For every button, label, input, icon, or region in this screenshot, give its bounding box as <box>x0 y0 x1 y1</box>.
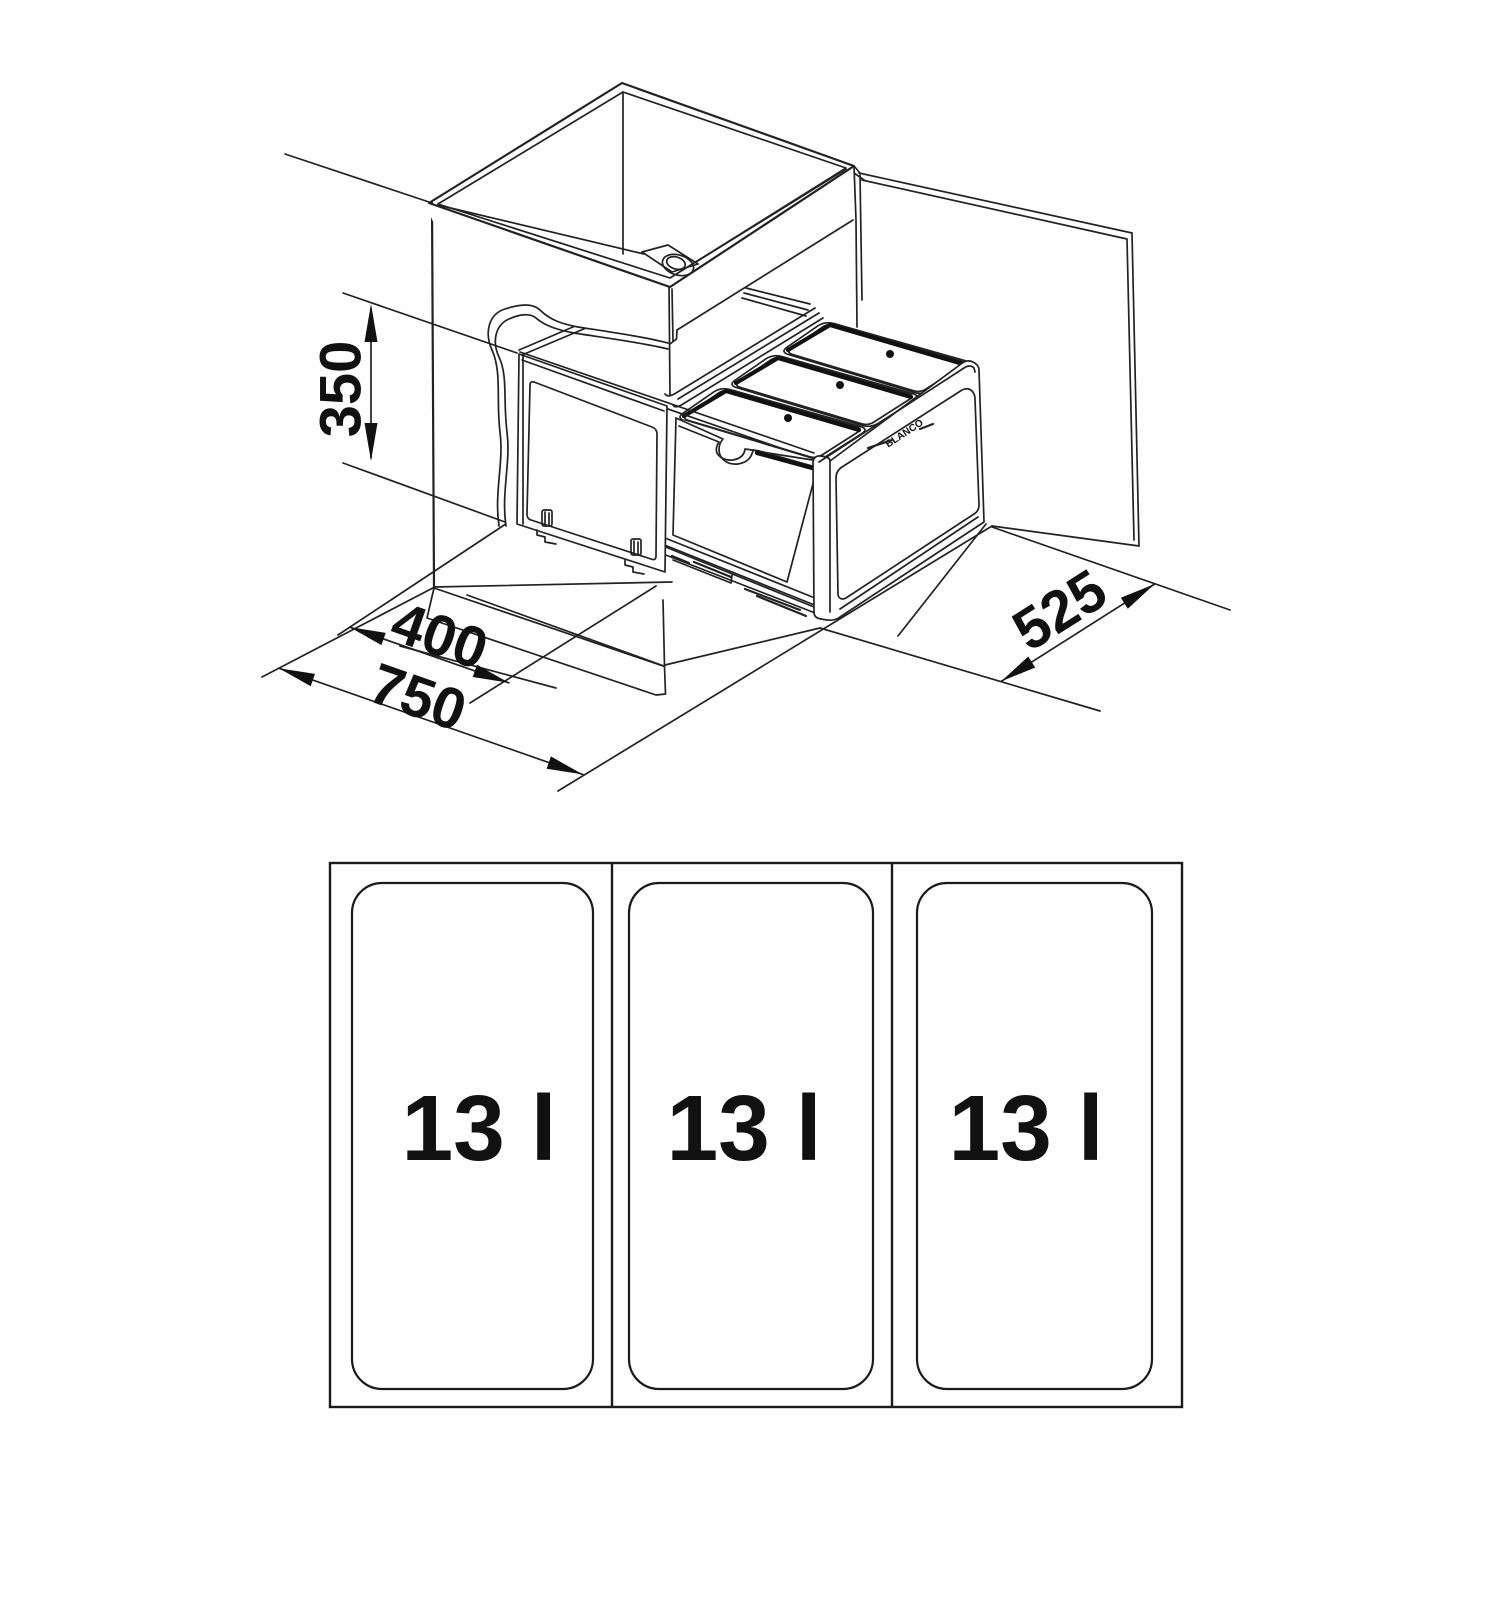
svg-text:13 l: 13 l <box>948 1076 1103 1180</box>
svg-text:525: 525 <box>1002 557 1119 664</box>
svg-text:350: 350 <box>309 341 374 438</box>
svg-text:13 l: 13 l <box>666 1076 821 1180</box>
svg-text:13 l: 13 l <box>401 1076 556 1180</box>
